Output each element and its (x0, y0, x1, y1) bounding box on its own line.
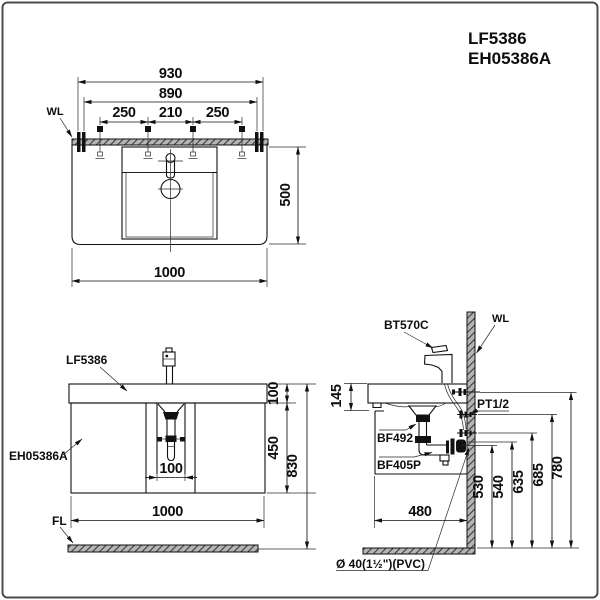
dim-100-counter: 100 (266, 382, 282, 406)
dim-930: 930 (159, 66, 183, 82)
dim-250-left: 250 (112, 105, 136, 121)
pvc-pipe-note: Ø 40(1½")(PVC) (336, 557, 425, 571)
counter-model-label: LF5386 (66, 353, 108, 367)
floor-section-front (68, 545, 258, 552)
front-labels: LF5386 EH05386A FL (9, 353, 127, 543)
dim-210: 210 (159, 105, 183, 121)
dim-1000-plan: 1000 (154, 265, 185, 281)
model-number-faucet: LF5386 (468, 29, 527, 48)
trap-model-label: BF405P (377, 458, 421, 472)
dim-500: 500 (278, 183, 294, 207)
page-border (3, 3, 598, 598)
counter-apron (373, 403, 381, 408)
supply-hose (445, 384, 467, 430)
dim-540: 540 (491, 475, 507, 499)
plan-dimensions: 930 890 250 210 250 500 1000 (72, 66, 306, 287)
drain-model-label: BF492 (377, 431, 413, 445)
technical-drawing-page: LF5386 EH05386A (0, 0, 600, 600)
dim-480: 480 (408, 504, 432, 520)
wall-line-label: WL (46, 106, 63, 118)
wall-section-side (467, 312, 475, 548)
front-view: 100 100 450 830 1000 LF5386 EH05386A FL (9, 348, 316, 552)
dim-1000-front: 1000 (152, 504, 183, 520)
wall-line-label-side: WL (492, 313, 509, 325)
wall-mount-bolt (452, 388, 480, 396)
dim-530: 530 (471, 475, 487, 499)
supply-thread-label: PT1/2 (477, 397, 509, 411)
faucet-front (163, 348, 175, 384)
side-view: BT570C WL PT1/2 BF492 BF405P Ø 40(1½")(P… (329, 312, 579, 571)
dim-830: 830 (285, 454, 301, 478)
dim-685: 685 (531, 463, 547, 487)
dim-250-right: 250 (206, 105, 230, 121)
dim-890: 890 (159, 86, 183, 102)
model-number-cabinet: EH05386A (468, 49, 551, 68)
dim-635: 635 (511, 470, 527, 494)
wall-section-plan (72, 132, 268, 152)
dim-145: 145 (329, 384, 345, 408)
countertop-plan (72, 145, 267, 245)
floor-line-label: FL (52, 514, 67, 528)
faucet-model-label: BT570C (384, 318, 429, 332)
dim-100-drain: 100 (159, 461, 183, 477)
wall-label-plan: WL (46, 106, 72, 137)
side-dimensions: 145 480 530 540 635 685 780 (329, 384, 579, 549)
faucet-side (425, 346, 453, 384)
plan-view: 930 890 250 210 250 500 1000 WL (46, 66, 306, 287)
cabinet-model-label: EH05386A (9, 449, 68, 463)
dim-780: 780 (550, 456, 566, 480)
title-block: LF5386 EH05386A (468, 29, 551, 68)
drawing-canvas: LF5386 EH05386A (0, 0, 600, 600)
countertop-front (69, 384, 267, 403)
front-dimensions: 100 100 450 830 1000 (71, 382, 316, 549)
dim-450: 450 (266, 436, 282, 460)
faucet-plan (158, 149, 183, 252)
floor-section-side (363, 548, 475, 554)
